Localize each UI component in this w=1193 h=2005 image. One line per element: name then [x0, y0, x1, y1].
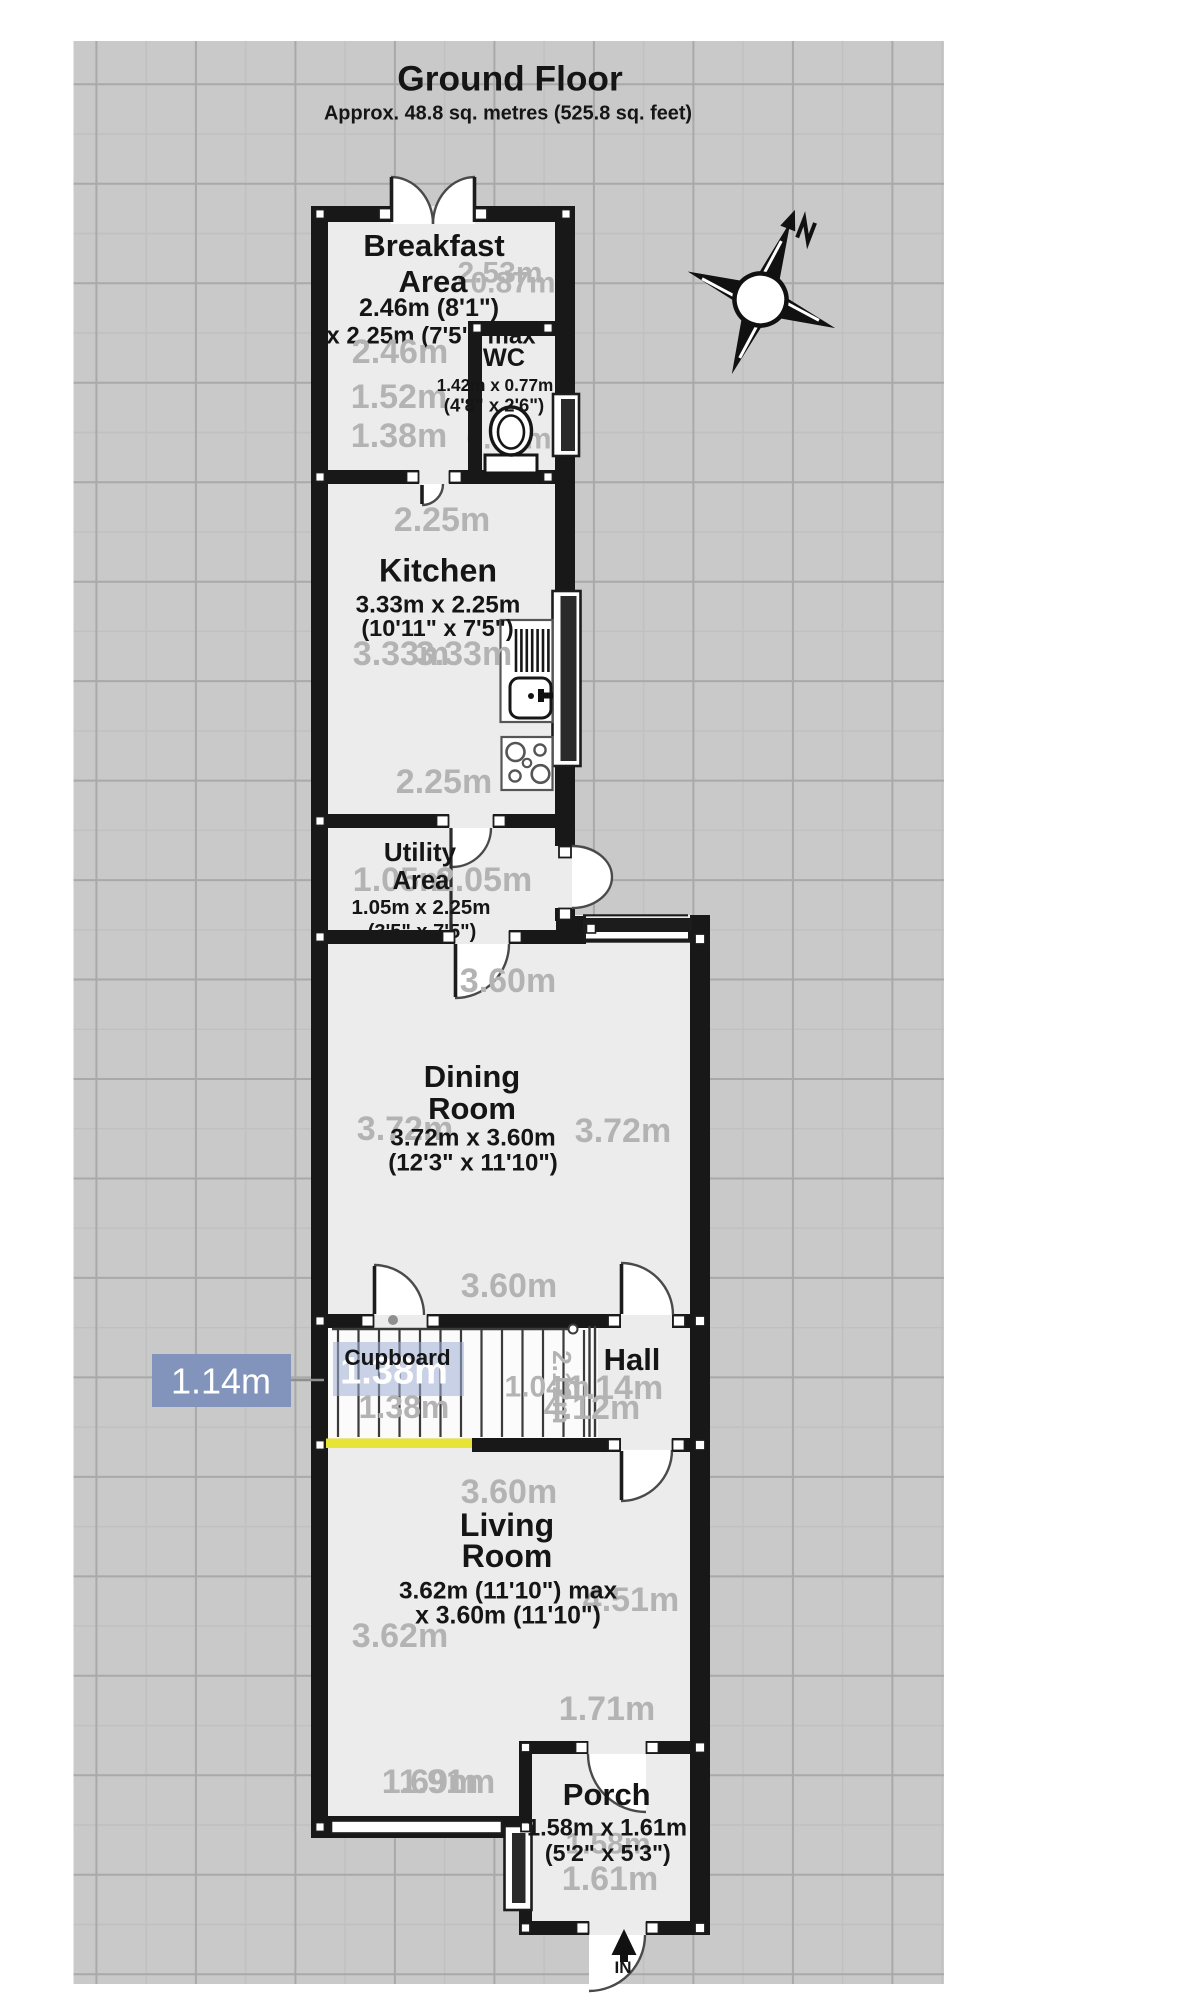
svg-text:Breakfast: Breakfast [363, 228, 504, 263]
svg-text:3.60m: 3.60m [461, 1267, 557, 1305]
svg-text:Hall: Hall [604, 1342, 661, 1377]
svg-text:Room: Room [428, 1091, 516, 1126]
svg-text:1.58m x 1.61m: 1.58m x 1.61m [527, 1815, 687, 1841]
svg-text:x 3.60m (11'10"): x 3.60m (11'10") [415, 1603, 601, 1630]
svg-text:3.60m: 3.60m [461, 1473, 557, 1511]
svg-text:2.46m (8'1"): 2.46m (8'1") [359, 294, 499, 322]
svg-text:1.52m: 1.52m [351, 378, 447, 416]
svg-text:1.14m: 1.14m [171, 1361, 271, 1402]
svg-text:Dining: Dining [424, 1059, 520, 1094]
svg-text:3.62m (11'10") max: 3.62m (11'10") max [399, 1578, 617, 1605]
svg-text:2.25m: 2.25m [396, 763, 492, 801]
svg-text:1.91m: 1.91m [399, 1763, 495, 1801]
svg-text:1.05m x 2.25m: 1.05m x 2.25m [351, 896, 490, 919]
svg-text:(5'2" x 5'3"): (5'2" x 5'3") [545, 1840, 671, 1866]
svg-text:(12'3" x 11'10"): (12'3" x 11'10") [388, 1149, 558, 1176]
svg-text:2.46m: 2.46m [352, 333, 448, 371]
svg-text:(10'11" x 7'5"): (10'11" x 7'5") [361, 615, 513, 641]
svg-text:2.25m: 2.25m [394, 501, 490, 539]
svg-text:IN: IN [615, 1958, 632, 1977]
svg-text:Utility: Utility [384, 837, 457, 867]
svg-text:3.72m x 3.60m: 3.72m x 3.60m [390, 1125, 555, 1152]
svg-text:1.71m: 1.71m [559, 1690, 655, 1728]
svg-text:WC: WC [483, 344, 525, 372]
svg-text:3.60m: 3.60m [460, 962, 556, 1000]
svg-text:Room: Room [462, 1538, 553, 1574]
svg-text:1.38m: 1.38m [351, 417, 447, 455]
svg-text:(4'8" x 2'6"): (4'8" x 2'6") [444, 394, 544, 415]
svg-text:4.12m: 4.12m [544, 1389, 640, 1427]
svg-text:Approx. 48.8 sq. metres (525.8: Approx. 48.8 sq. metres (525.8 sq. feet) [324, 102, 692, 124]
svg-text:Kitchen: Kitchen [379, 552, 497, 588]
svg-text:1.42m x 0.77m: 1.42m x 0.77m [437, 375, 554, 395]
svg-text:Ground Floor: Ground Floor [397, 59, 623, 98]
svg-text:3.72m: 3.72m [575, 1112, 671, 1150]
svg-text:Area: Area [393, 867, 451, 895]
svg-text:Porch: Porch [563, 1777, 651, 1812]
svg-text:Cupboard: Cupboard [344, 1345, 450, 1370]
